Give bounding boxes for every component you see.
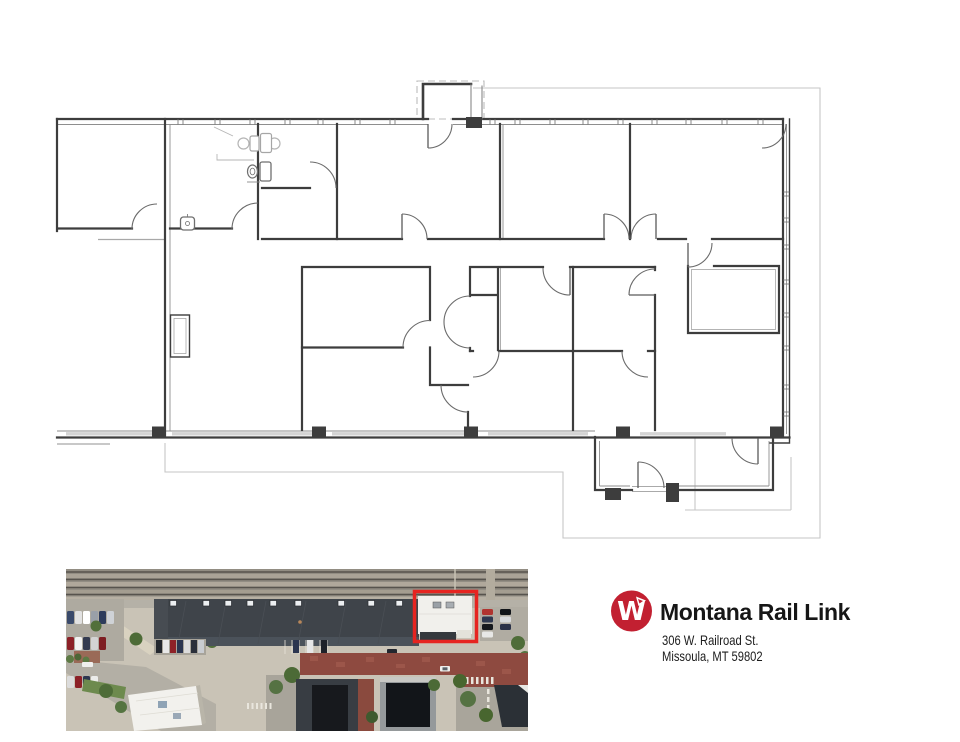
wall-niche <box>171 315 190 357</box>
address-line-2: Missoula, MT 59802 <box>662 649 763 665</box>
depot-building <box>154 599 419 646</box>
aerial-photo-figure <box>66 569 528 731</box>
floor-plan-figure <box>0 0 960 560</box>
flyer-page: W Montana Rail Link 306 W. Railroad St. … <box>0 0 960 742</box>
address-block: 306 W. Railroad St. Missoula, MT 59802 <box>662 633 788 664</box>
address-line-1: 306 W. Railroad St. <box>662 633 759 649</box>
wall-columns <box>152 117 784 502</box>
company-name: Montana Rail Link <box>660 599 850 626</box>
walls <box>57 84 790 490</box>
wall-inner-faces <box>57 124 787 492</box>
mrl-logo-icon: W <box>608 587 656 635</box>
bathroom-fixtures <box>181 127 281 230</box>
subject-building <box>418 596 472 640</box>
sink-icon <box>181 214 195 230</box>
wall-sink-pair-icon <box>214 127 280 160</box>
brand-block: W Montana Rail Link 306 W. Railroad St. … <box>608 587 938 687</box>
